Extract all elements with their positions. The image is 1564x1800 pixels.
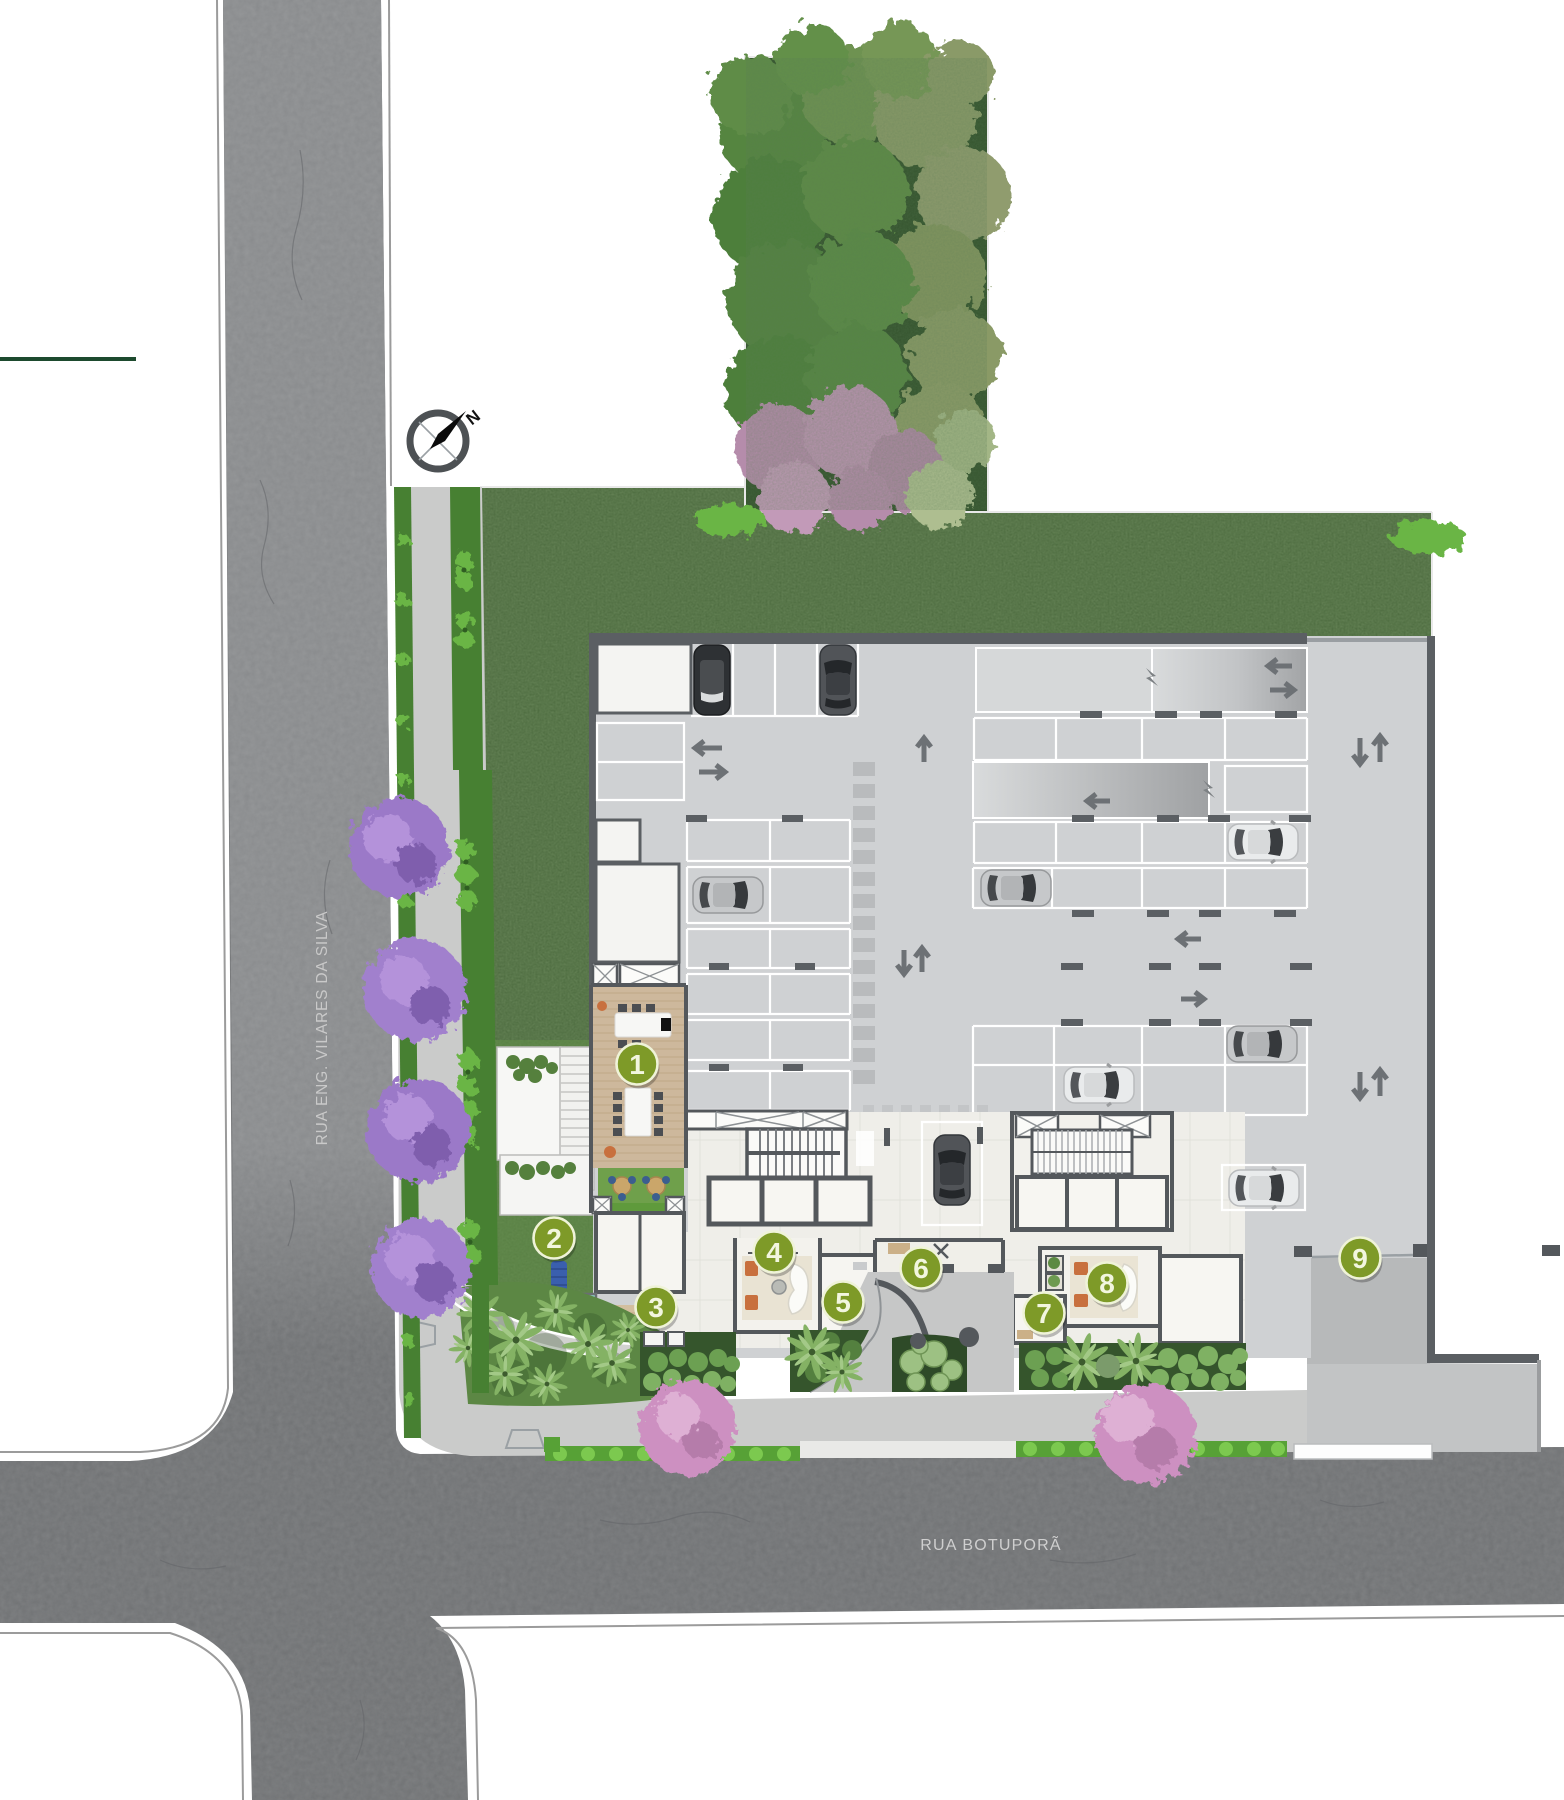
svg-text:5: 5	[835, 1287, 851, 1318]
svg-text:RUA ENG. VILARES DA SILVA: RUA ENG. VILARES DA SILVA	[314, 911, 331, 1146]
svg-text:9: 9	[1352, 1243, 1368, 1274]
svg-text:4: 4	[766, 1237, 782, 1268]
svg-text:6: 6	[913, 1253, 929, 1284]
svg-text:1: 1	[629, 1049, 645, 1080]
svg-text:RUA BOTUPORÃ: RUA BOTUPORÃ	[920, 1534, 1062, 1554]
svg-text:3: 3	[648, 1292, 664, 1323]
svg-text:7: 7	[1036, 1298, 1052, 1329]
svg-text:8: 8	[1099, 1268, 1115, 1299]
svg-text:2: 2	[546, 1223, 562, 1254]
